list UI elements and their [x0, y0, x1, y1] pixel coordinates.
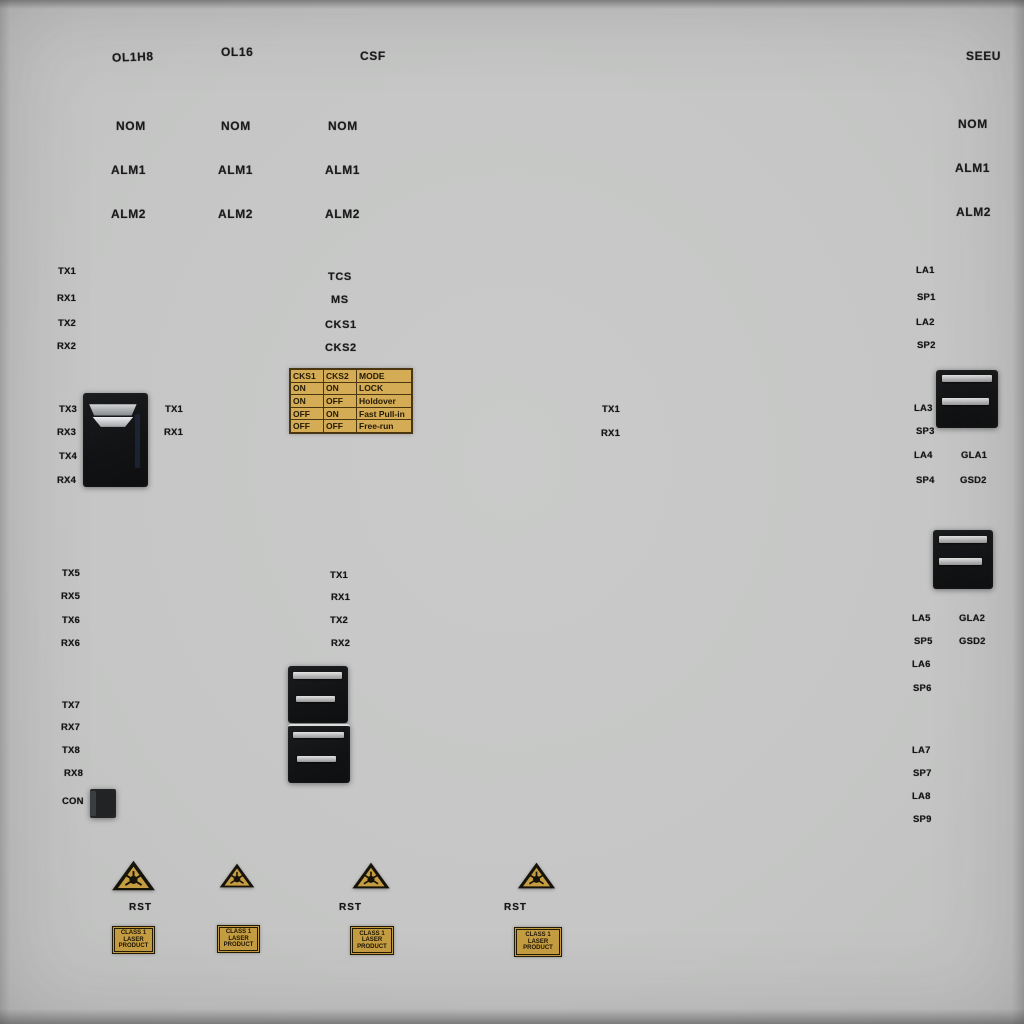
led-label-nom: NOM	[116, 119, 146, 133]
adapter-slot	[942, 375, 993, 382]
led-label-alm2: ALM2	[325, 207, 360, 221]
led-label-alm1: ALM1	[111, 163, 146, 177]
port-label-tx1: TX1	[165, 404, 183, 415]
laser-label-line: PRODUCT	[224, 942, 254, 949]
port-label-tx8: TX8	[62, 745, 80, 756]
fiber-connector-port	[83, 393, 148, 487]
port-label-sp1: SP1	[917, 292, 936, 303]
card-title-csf: CSF	[360, 49, 386, 63]
port-label-rx1: RX1	[164, 427, 183, 438]
led-label-alm1: ALM1	[955, 161, 990, 175]
port-label-rx6: RX6	[61, 638, 80, 649]
adapter-slot	[296, 696, 334, 703]
laser-label-line: CLASS 1	[525, 932, 550, 939]
port-label-gsd2: GSD2	[960, 475, 987, 486]
laser-warning-icon	[219, 863, 255, 888]
port-label-la4: LA4	[914, 450, 933, 461]
port-label-sp4: SP4	[916, 475, 935, 486]
duplex-adapter-port	[288, 666, 348, 723]
port-label-rx2: RX2	[331, 638, 350, 649]
duplex-adapter-port	[933, 530, 993, 589]
port-label-rx1: RX1	[601, 428, 620, 439]
port-label-tx1: TX1	[58, 266, 76, 277]
port-label-gsd2: GSD2	[959, 636, 986, 647]
laser-warning-icon	[110, 860, 157, 891]
port-label-tx4: TX4	[59, 451, 77, 462]
port-label-tx1: TX1	[330, 570, 348, 581]
port-label-tx3: TX3	[59, 404, 77, 415]
clock-label-cks1: CKS1	[325, 319, 357, 331]
laser-label-line: LASER	[123, 937, 143, 944]
mode-table-cell: ON	[290, 395, 324, 408]
port-label-con: CON	[62, 796, 84, 807]
port-label-tx2: TX2	[58, 318, 76, 329]
port-label-tx5: TX5	[62, 568, 80, 579]
adapter-slot	[942, 398, 989, 406]
port-label-sp3: SP3	[916, 426, 935, 437]
reset-label: RST	[339, 902, 362, 913]
laser-warning-icon	[517, 862, 556, 889]
mode-table-cell: OFF	[324, 420, 357, 433]
led-label-alm1: ALM1	[325, 163, 360, 177]
port-label-tx6: TX6	[62, 615, 80, 626]
adapter-slot	[939, 536, 987, 543]
duplex-adapter-port	[288, 724, 350, 783]
class1-laser-label: CLASS 1 LASER PRODUCT	[514, 927, 562, 957]
adapter-slot	[293, 732, 344, 738]
mode-table-header: CKS1	[290, 369, 324, 382]
mode-table-cell: ON	[324, 382, 357, 395]
laser-label-line: LASER	[228, 936, 248, 943]
port-label-la2: LA2	[916, 317, 935, 328]
connector-detail	[135, 414, 140, 469]
mode-table-header: MODE	[357, 369, 413, 382]
port-label-gla2: GLA2	[959, 613, 985, 624]
port-label-la6: LA6	[912, 659, 931, 670]
port-label-la1: LA1	[916, 265, 935, 276]
port-label-rx7: RX7	[61, 722, 80, 733]
port-label-sp2: SP2	[917, 340, 936, 351]
laser-label-line: CLASS 1	[359, 931, 384, 938]
laser-label-line: CLASS 1	[226, 929, 251, 936]
equipment-panel: OL1H8 OL16 CSF SEEU NOM ALM1 ALM2 NOM AL…	[0, 0, 1024, 1024]
duplex-adapter-port	[936, 370, 998, 428]
clock-label-ms: MS	[331, 294, 349, 306]
laser-label-line: LASER	[362, 937, 382, 944]
clock-label-tcs: TCS	[328, 271, 352, 283]
con-port	[90, 789, 116, 818]
class1-laser-label: CLASS 1 LASER PRODUCT	[112, 926, 155, 954]
adapter-slot	[297, 756, 337, 763]
laser-label-line: PRODUCT	[119, 943, 149, 950]
clock-label-cks2: CKS2	[325, 342, 357, 354]
port-label-la3: LA3	[914, 403, 933, 414]
port-label-rx1: RX1	[57, 293, 76, 304]
laser-label-line: PRODUCT	[523, 945, 553, 952]
mode-table-cell: ON	[324, 407, 357, 420]
port-label-tx7: TX7	[62, 700, 80, 711]
adapter-slot	[293, 672, 342, 678]
connector-latch	[88, 404, 137, 415]
port-label-tx1: TX1	[602, 404, 620, 415]
port-label-rx2: RX2	[57, 341, 76, 352]
port-label-rx5: RX5	[61, 591, 80, 602]
reset-label: RST	[129, 902, 152, 913]
led-label-nom: NOM	[221, 119, 251, 133]
laser-label-line: PRODUCT	[357, 944, 387, 951]
led-label-alm2: ALM2	[111, 207, 146, 221]
port-label-la7: LA7	[912, 745, 931, 756]
connector-latch	[90, 417, 137, 427]
led-label-alm1: ALM1	[218, 163, 253, 177]
connector-detail	[90, 791, 96, 815]
card-title-ol1h8: OL1H8	[112, 49, 154, 64]
port-label-gla1: GLA1	[961, 450, 987, 461]
card-title-ol16: OL16	[221, 45, 253, 59]
led-label-alm2: ALM2	[956, 205, 991, 219]
mode-table-cell: OFF	[290, 420, 324, 433]
mode-table-cell: Fast Pull-in	[357, 407, 413, 420]
port-label-la5: LA5	[912, 613, 931, 624]
port-label-rx1: RX1	[331, 592, 350, 603]
class1-laser-label: CLASS 1 LASER PRODUCT	[350, 926, 394, 955]
mode-table-cell: OFF	[290, 407, 324, 420]
port-label-sp7: SP7	[913, 768, 932, 779]
port-label-tx2: TX2	[330, 615, 348, 626]
laser-warning-icon	[351, 862, 391, 889]
port-label-rx3: RX3	[57, 427, 76, 438]
mode-table-cell: Holdover	[357, 395, 413, 408]
laser-label-line: LASER	[528, 939, 548, 946]
port-label-sp5: SP5	[914, 636, 933, 647]
mode-table-cell: Free-run	[357, 420, 413, 433]
led-label-nom: NOM	[958, 117, 988, 131]
mode-table-header: CKS2	[324, 369, 357, 382]
port-label-rx4: RX4	[57, 475, 76, 486]
port-label-rx8: RX8	[64, 768, 83, 779]
led-label-nom: NOM	[328, 119, 358, 133]
mode-table-cell: ON	[290, 382, 324, 395]
mode-table-cell: LOCK	[357, 382, 413, 395]
clock-mode-table: CKS1 CKS2 MODE ON ON LOCK ON OFF Holdove…	[289, 368, 413, 434]
reset-label: RST	[504, 902, 527, 913]
class1-laser-label: CLASS 1 LASER PRODUCT	[217, 925, 260, 953]
port-label-sp9: SP9	[913, 814, 932, 825]
led-label-alm2: ALM2	[218, 207, 253, 221]
adapter-slot	[939, 558, 982, 566]
laser-label-line: CLASS 1	[121, 930, 146, 937]
port-label-sp6: SP6	[913, 683, 932, 694]
mode-table-cell: OFF	[324, 395, 357, 408]
port-label-la8: LA8	[912, 791, 931, 802]
card-title-seeu: SEEU	[966, 49, 1001, 63]
